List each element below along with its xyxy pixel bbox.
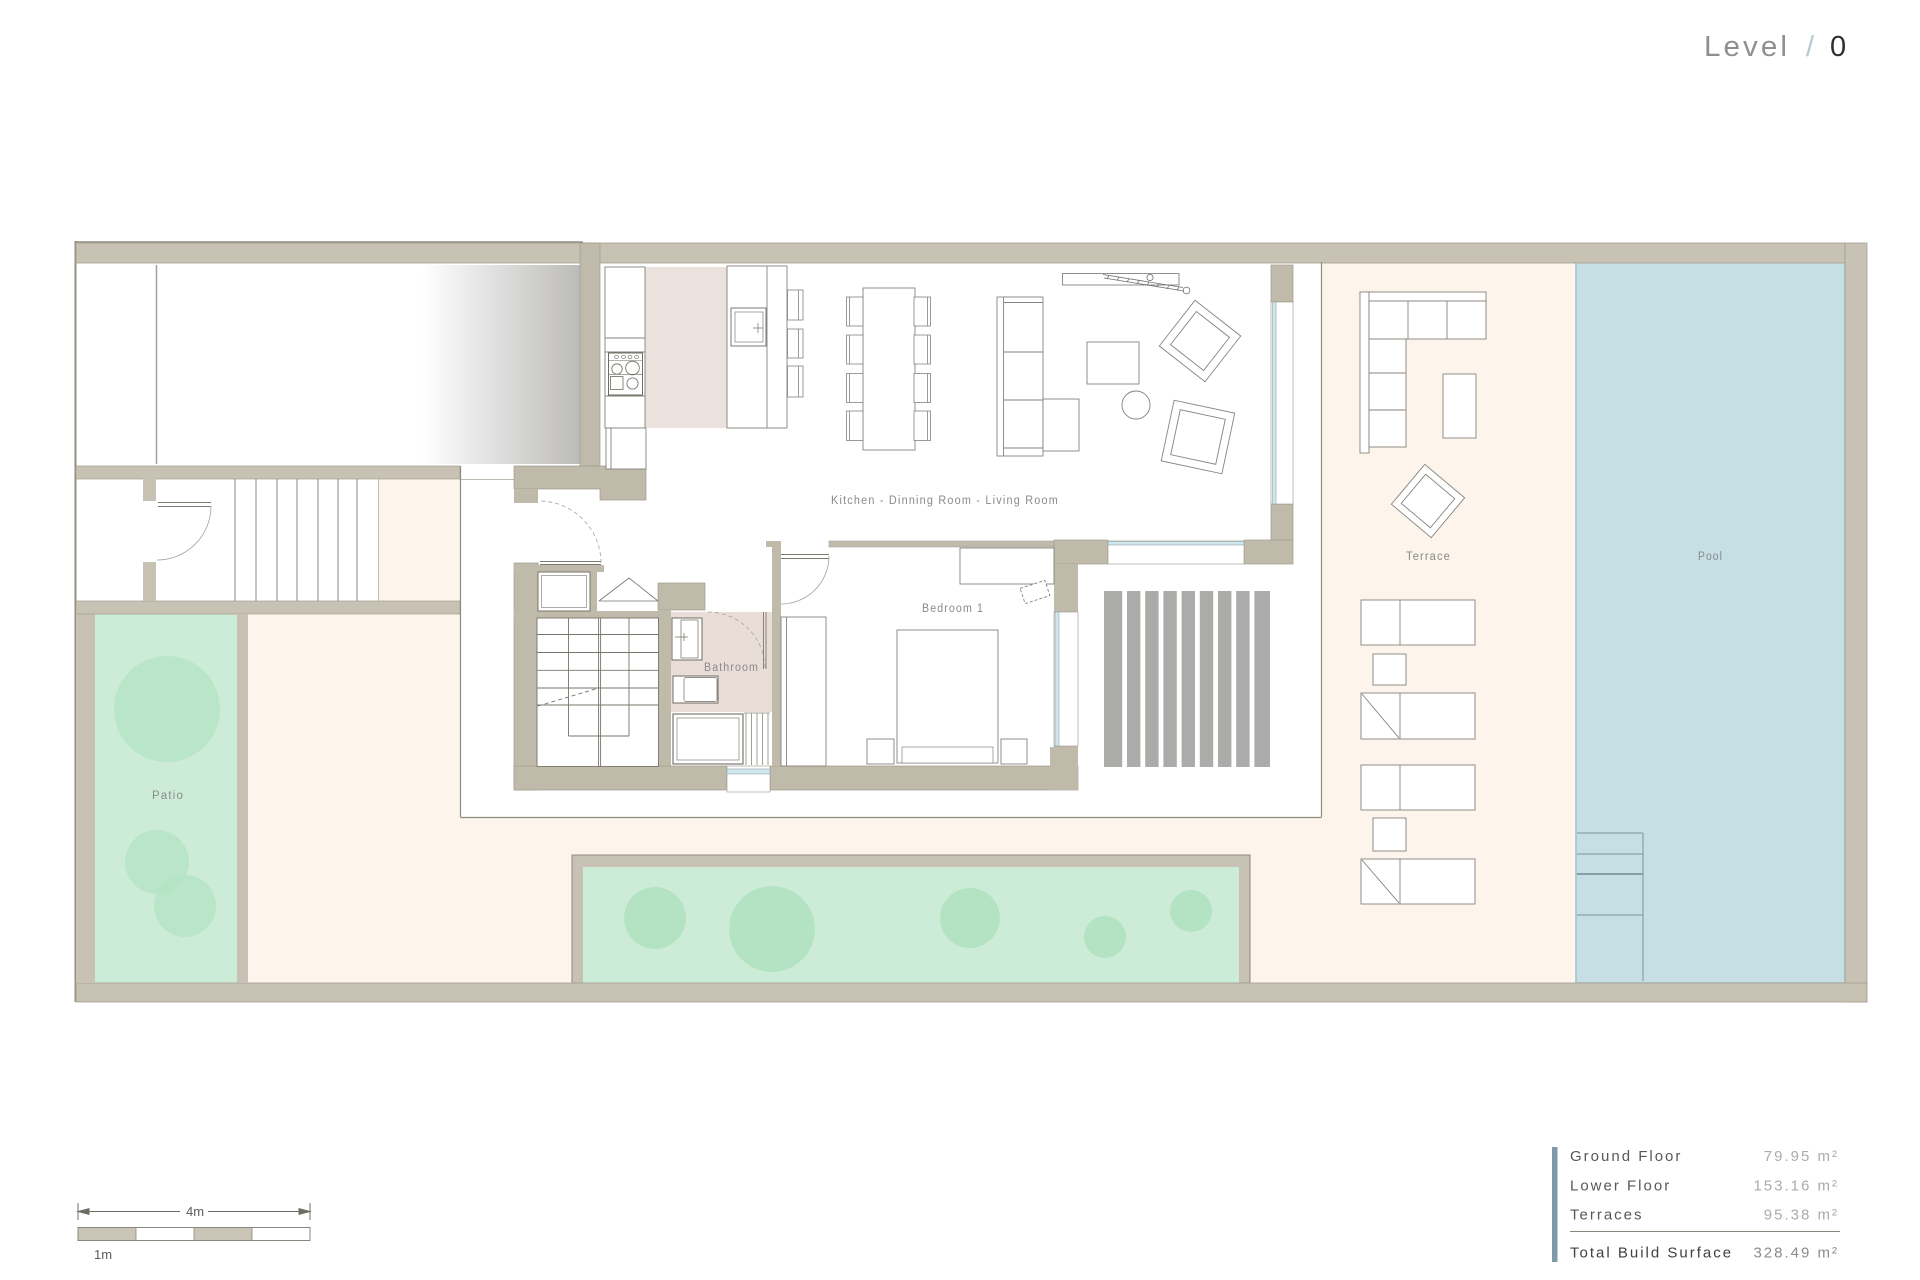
svg-text:Pool: Pool (1698, 551, 1723, 563)
svg-text:4m: 4m (186, 1204, 204, 1219)
svg-text:Lower Floor: Lower Floor (1570, 1178, 1671, 1195)
svg-text:0: 0 (1830, 31, 1846, 63)
svg-text:Total Build Surface: Total Build Surface (1570, 1245, 1733, 1262)
svg-text:95.38 m²: 95.38 m² (1764, 1207, 1839, 1224)
svg-text:Bedroom 1: Bedroom 1 (922, 603, 984, 615)
svg-text:Ground Floor: Ground Floor (1570, 1148, 1682, 1165)
svg-text:Bathroom: Bathroom (704, 662, 759, 674)
svg-text:Kitchen - Dinning Room - Livin: Kitchen - Dinning Room - Living Room (831, 495, 1059, 507)
svg-text:Terraces: Terraces (1570, 1207, 1644, 1224)
svg-text:Patio: Patio (152, 790, 184, 802)
svg-text:1m: 1m (94, 1247, 112, 1262)
svg-text:Terrace: Terrace (1406, 551, 1451, 563)
svg-text:/: / (1806, 31, 1815, 63)
svg-text:328.49 m²: 328.49 m² (1753, 1245, 1839, 1262)
svg-text:Level: Level (1704, 31, 1790, 63)
svg-text:79.95 m²: 79.95 m² (1764, 1148, 1839, 1165)
svg-text:153.16 m²: 153.16 m² (1753, 1178, 1839, 1195)
